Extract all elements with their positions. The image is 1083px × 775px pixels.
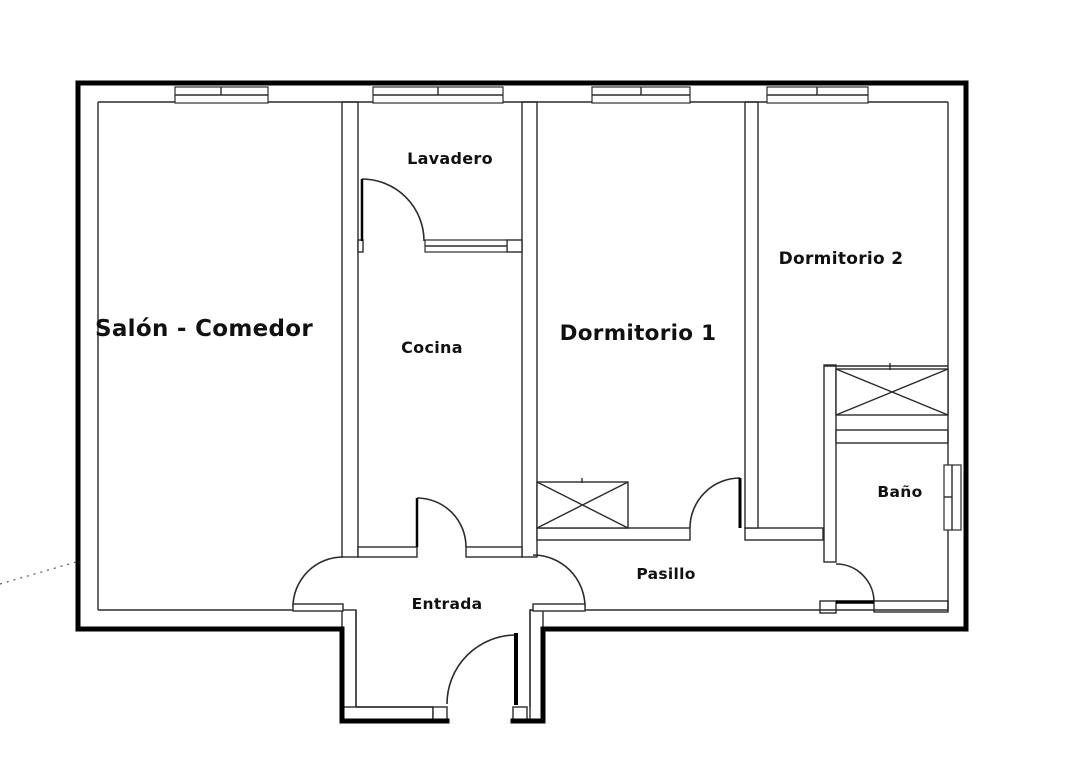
wall-cocina-bottom-left — [358, 547, 417, 557]
room-label-lavadero: Lavadero — [407, 149, 493, 168]
wall-cocina-dormitorio1 — [522, 102, 537, 557]
wardrobe-dormitorio1 — [537, 478, 628, 528]
window-dormitorio2 — [767, 87, 868, 103]
door-entrada-salon — [293, 557, 343, 611]
room-label-pasillo: Pasillo — [636, 565, 695, 583]
floor-plan-page: Salón - Comedor Lavadero Cocina Dormitor… — [0, 0, 1083, 775]
wardrobe-dormitorio2 — [824, 363, 948, 415]
windows — [175, 87, 961, 530]
door-dormitorio1 — [690, 478, 740, 528]
wardrobes — [537, 363, 948, 528]
wall-pasillo-top-left — [537, 528, 690, 540]
wall-bano-left — [824, 365, 836, 562]
window-lavadero-counter — [425, 240, 507, 252]
wall-cocina-bottom-right — [466, 547, 522, 557]
room-label-dormitorio1: Dormitorio 1 — [560, 321, 717, 346]
window-lavadero-top — [373, 87, 503, 103]
wall-dormitorio1-dormitorio2 — [745, 102, 758, 528]
door-lavadero — [362, 179, 424, 241]
room-label-cocina: Cocina — [401, 338, 463, 357]
wall-pasillo-top-right — [745, 528, 823, 540]
room-label-dormitorio2: Dormitorio 2 — [779, 249, 904, 269]
window-salon — [175, 87, 268, 103]
wall-bano-top — [836, 430, 948, 443]
wall-salon-cocina — [342, 102, 358, 557]
room-label-bano: Baño — [877, 483, 922, 501]
window-bano — [944, 465, 961, 530]
room-label-salon: Salón - Comedor — [95, 316, 313, 342]
room-label-entrada: Entrada — [412, 595, 483, 613]
room-labels: Salón - Comedor Lavadero Cocina Dormitor… — [95, 149, 923, 613]
door-entrada-pasillo — [533, 555, 585, 611]
door-main-entrance — [447, 633, 516, 705]
wall-bano-door-jamb — [820, 601, 836, 613]
window-dormitorio1 — [592, 87, 690, 103]
door-cocina — [417, 498, 466, 547]
wall-lavadero-right — [507, 240, 522, 252]
wall-lavadero-stub — [358, 240, 363, 252]
dotted-reference-line — [0, 562, 76, 584]
door-bano — [836, 564, 874, 602]
floor-plan-canvas: Salón - Comedor Lavadero Cocina Dormitor… — [0, 0, 1083, 775]
